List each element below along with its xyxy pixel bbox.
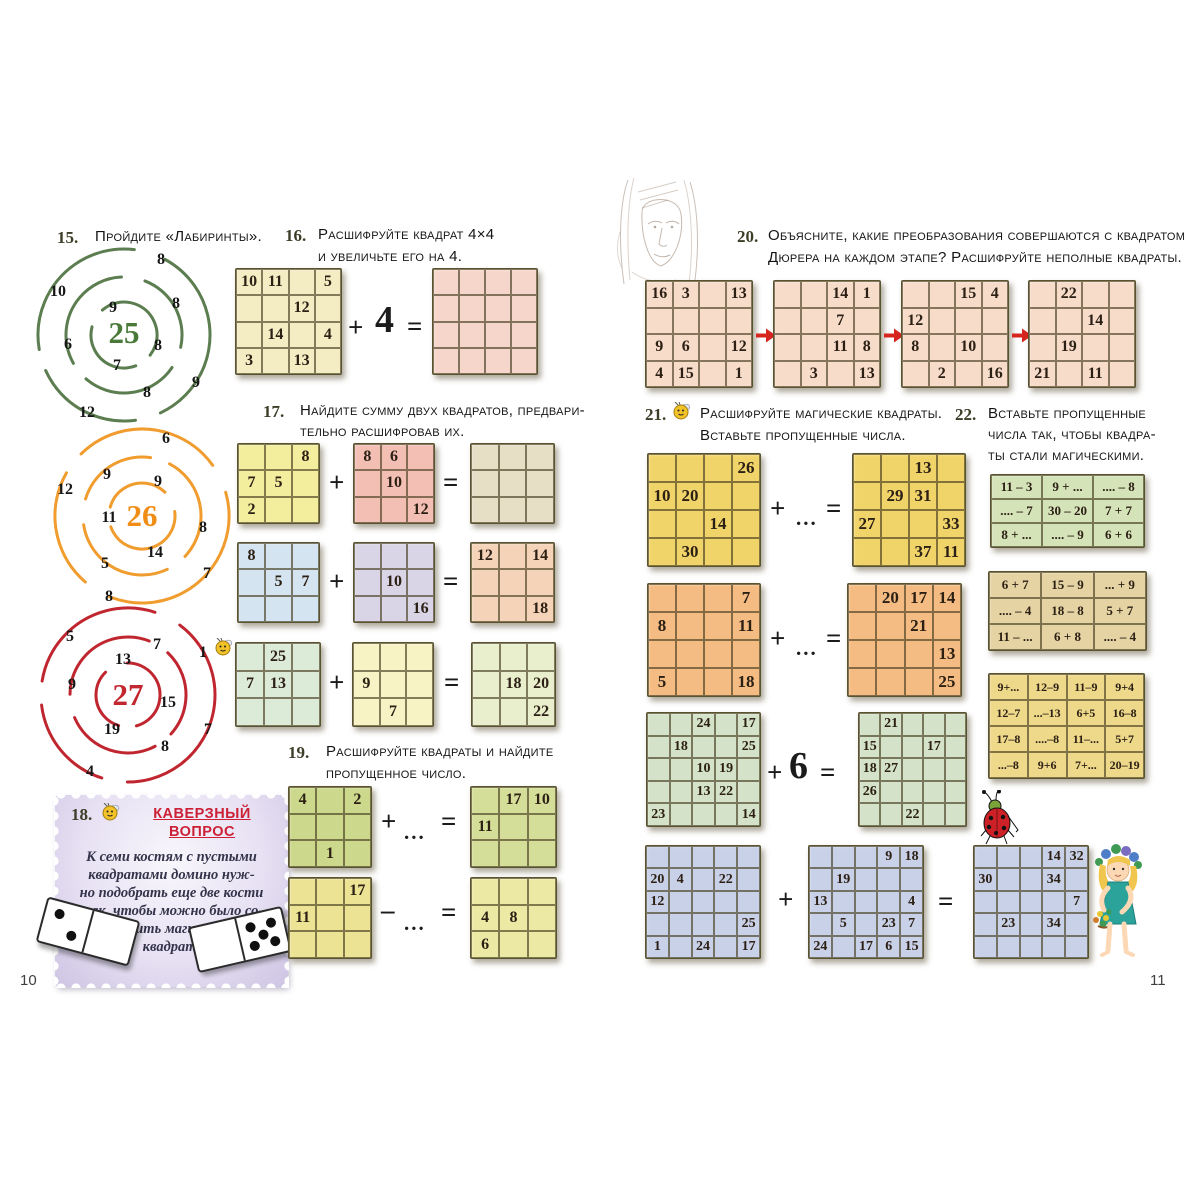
grid-cell xyxy=(236,295,262,321)
grid-cell: 17–8 xyxy=(989,726,1028,752)
grid-cell xyxy=(354,543,381,569)
grid-cell xyxy=(853,482,881,510)
task22-table-1: 11 – 39 + ....... – 8.... – 730 – 207 + … xyxy=(990,474,1145,548)
spiral-number: 7 xyxy=(113,357,121,375)
grid-cell xyxy=(648,640,676,668)
grid-cell: 4 xyxy=(289,787,316,814)
grid-cell xyxy=(737,758,760,781)
equals-operator: = xyxy=(443,467,458,498)
grid-cell xyxy=(1020,891,1043,913)
spiral-number: 9 xyxy=(192,374,200,392)
grid-cell xyxy=(407,569,434,595)
grid-cell xyxy=(997,846,1020,868)
grid-cell: 15 xyxy=(955,281,982,308)
grid-cell: 17 xyxy=(737,713,760,736)
grid-cell xyxy=(471,787,499,814)
grid-cell: 11 xyxy=(262,269,288,295)
grid-cell: 2 xyxy=(929,361,956,388)
task17-row3-grid-sum: 182022 xyxy=(471,642,556,727)
grid-cell xyxy=(289,269,315,295)
grid-cell xyxy=(459,322,485,348)
grid-cell: 30 – 20 xyxy=(1042,499,1093,523)
grid-cell: ...–13 xyxy=(1028,700,1067,726)
grid-cell xyxy=(292,596,319,622)
grid-cell xyxy=(471,569,499,595)
grid-cell xyxy=(433,322,459,348)
grid-cell xyxy=(929,334,956,361)
grid-cell xyxy=(381,543,408,569)
grid-cell xyxy=(827,361,854,388)
grid-cell: 12–7 xyxy=(989,700,1028,726)
grid-cell xyxy=(647,736,670,759)
grid-cell xyxy=(527,643,555,671)
grid-cell: 20 xyxy=(646,868,669,890)
task22-text-line3: ты стали магическими. xyxy=(988,447,1144,464)
grid-cell xyxy=(715,803,738,826)
grid-cell: 11 – 3 xyxy=(991,475,1042,499)
task20-text-line1: Объясните, какие преобразования совершаю… xyxy=(768,227,1185,244)
grid-cell: 11–9 xyxy=(1067,674,1106,700)
grid-cell xyxy=(1056,308,1083,335)
grid-cell xyxy=(714,913,737,935)
grid-cell xyxy=(881,454,909,482)
grid-cell xyxy=(929,281,956,308)
spiral-number: 11 xyxy=(101,509,116,527)
grid-cell xyxy=(982,308,1009,335)
grid-cell xyxy=(471,444,499,470)
durer-portrait-sketch xyxy=(598,172,723,297)
grid-cell xyxy=(407,470,434,496)
grid-cell xyxy=(809,868,832,890)
spiral-number: 8 xyxy=(161,738,169,756)
grid-cell: 6 xyxy=(471,931,499,958)
grid-cell: 20 xyxy=(876,584,904,612)
grid-cell: 2 xyxy=(238,497,265,523)
task16-number: 16. xyxy=(285,226,306,246)
grid-cell: 4 xyxy=(900,891,923,913)
grid-cell xyxy=(704,482,732,510)
grid-cell xyxy=(500,698,528,726)
grid-cell xyxy=(316,931,343,958)
grid-cell: 34 xyxy=(1042,913,1065,935)
grid-cell: 13 xyxy=(909,454,937,482)
grid-cell: 10 xyxy=(692,758,715,781)
operand-4: 4 xyxy=(375,298,394,342)
grid-cell xyxy=(528,931,556,958)
grid-cell xyxy=(354,596,381,622)
grid-cell xyxy=(485,295,511,321)
grid-cell xyxy=(801,334,828,361)
spiral-number: 8 xyxy=(154,337,162,355)
grid-cell: 10 xyxy=(381,569,408,595)
grid-cell: 31 xyxy=(909,482,937,510)
grid-cell: .... – 4 xyxy=(1094,624,1146,650)
grid-cell xyxy=(809,846,832,868)
domino-pip xyxy=(53,908,65,920)
grid-cell xyxy=(648,510,676,538)
grid-cell xyxy=(1042,936,1065,958)
plus-operator: + xyxy=(348,312,363,343)
grid-cell xyxy=(909,510,937,538)
grid-cell xyxy=(485,322,511,348)
grid-cell xyxy=(670,803,693,826)
grid-cell xyxy=(669,846,692,868)
task19-row2-grid-a: 1711 xyxy=(288,877,372,959)
grid-cell xyxy=(905,640,933,668)
domino-pip xyxy=(265,916,277,928)
grid-cell: 7 xyxy=(380,698,407,726)
spiral-number: 6 xyxy=(64,336,72,354)
grid-cell: 18 xyxy=(900,846,923,868)
grid-cell xyxy=(472,698,500,726)
grid-cell: 13 xyxy=(726,281,753,308)
task17-row2-grid-sum: 121418 xyxy=(470,542,555,623)
grid-cell xyxy=(1020,913,1043,935)
grid-cell: 13 xyxy=(289,348,315,374)
grid-cell xyxy=(673,308,700,335)
stamp-body-line: но подобрать еще две кости xyxy=(61,885,282,902)
spiral-number: 14 xyxy=(147,544,163,562)
grid-cell: .... – 8 xyxy=(1093,475,1144,499)
grid-cell xyxy=(316,814,343,841)
grid-cell: 9+... xyxy=(989,674,1028,700)
spiral-number: 6 xyxy=(162,430,170,448)
grid-cell: 5 xyxy=(265,569,292,595)
grid-cell xyxy=(528,814,556,841)
grid-cell: 15 xyxy=(673,361,700,388)
grid-cell: 14 xyxy=(262,322,288,348)
grid-cell xyxy=(511,322,537,348)
grid-cell xyxy=(699,361,726,388)
grid-cell xyxy=(704,640,732,668)
grid-cell xyxy=(704,538,732,566)
grid-cell xyxy=(854,308,881,335)
task22-table-3: 9+...12–911–99+412–7...–136+516–817–8...… xyxy=(988,673,1145,779)
grid-cell xyxy=(315,295,341,321)
spiral-number: 5 xyxy=(66,628,74,646)
domino-pip xyxy=(65,930,77,942)
page-number-right: 11 xyxy=(1150,972,1166,989)
grid-cell: 5 xyxy=(648,668,676,696)
grid-cell xyxy=(737,846,760,868)
grid-cell xyxy=(732,538,760,566)
task22-text-line1: Вставьте пропущенные xyxy=(988,405,1146,422)
plus-operator: + xyxy=(767,757,782,788)
grid-cell xyxy=(1029,308,1056,335)
grid-cell xyxy=(381,497,408,523)
grid-cell: ... + 9 xyxy=(1094,572,1146,598)
grid-cell: 18 xyxy=(859,758,880,781)
grid-cell xyxy=(238,444,265,470)
grid-cell xyxy=(877,868,900,890)
grid-cell xyxy=(1109,281,1136,308)
grid-cell xyxy=(801,281,828,308)
grid-cell: 27 xyxy=(880,758,901,781)
grid-cell: 24 xyxy=(692,713,715,736)
task17-row1-grid-b: 861012 xyxy=(353,443,435,524)
grid-cell xyxy=(923,803,944,826)
grid-cell xyxy=(726,308,753,335)
grid-cell xyxy=(433,295,459,321)
labyrinth-25: 25 8 10 9 8 6 8 7 8 9 12 xyxy=(10,240,250,440)
spiral-number: 7 xyxy=(204,721,212,739)
equals-operator: = xyxy=(441,897,456,928)
grid-cell xyxy=(982,334,1009,361)
grid-cell xyxy=(500,643,528,671)
domino-pip xyxy=(249,940,261,952)
grid-cell xyxy=(1042,891,1065,913)
grid-cell xyxy=(647,713,670,736)
grid-cell: 8 xyxy=(499,905,527,932)
grid-cell xyxy=(923,781,944,804)
grid-cell xyxy=(499,840,527,867)
grid-cell: 19 xyxy=(1056,334,1083,361)
task21-number: 21. xyxy=(645,405,666,425)
grid-cell: 7+... xyxy=(1067,752,1106,778)
grid-cell: 8 xyxy=(354,444,381,470)
grid-cell: 25 xyxy=(933,668,961,696)
grid-cell xyxy=(732,510,760,538)
grid-cell xyxy=(859,803,880,826)
task17-row2-grid-b: 1016 xyxy=(353,542,435,623)
stamp-body-line: К семи костям с пустыми xyxy=(61,849,282,866)
plus-operator: + xyxy=(329,467,344,498)
spiral-number: 8 xyxy=(157,251,165,269)
grid-cell xyxy=(880,803,901,826)
grid-cell: 4 xyxy=(669,868,692,890)
grid-cell xyxy=(714,891,737,913)
grid-cell: 15 – 9 xyxy=(1041,572,1093,598)
grid-cell xyxy=(774,334,801,361)
grid-cell: 10 xyxy=(236,269,262,295)
task18-number: 18. xyxy=(71,805,92,825)
grid-cell xyxy=(669,913,692,935)
grid-cell xyxy=(692,868,715,890)
book-spread: 15. Пройдите «Лабиринты». 25 8 10 9 8 6 … xyxy=(0,0,1200,1200)
grid-cell xyxy=(881,510,909,538)
equals-operator: = xyxy=(407,311,422,342)
grid-cell: 9 + ... xyxy=(1042,475,1093,499)
grid-cell xyxy=(714,936,737,958)
grid-cell xyxy=(289,878,316,905)
grid-cell xyxy=(902,281,929,308)
grid-cell: 5 + 7 xyxy=(1094,598,1146,624)
grid-cell xyxy=(354,497,381,523)
task21-row1-grid-b: 13293127333711 xyxy=(852,453,966,567)
grid-cell xyxy=(699,334,726,361)
grid-cell: 13 xyxy=(264,671,292,699)
task21-row4-grid-a: 20422122512417 xyxy=(645,845,761,959)
grid-cell xyxy=(528,905,556,932)
grid-cell xyxy=(669,891,692,913)
grid-cell xyxy=(715,713,738,736)
grid-cell xyxy=(676,668,704,696)
grid-cell: 1 xyxy=(316,840,343,867)
task19-text-line1: Расшифруйте квадраты и найдите xyxy=(326,743,554,760)
grid-cell xyxy=(997,891,1020,913)
grid-cell: 25 xyxy=(264,643,292,671)
grid-cell: 7 + 7 xyxy=(1093,499,1144,523)
grid-cell xyxy=(848,612,876,640)
grid-cell: .... – 4 xyxy=(989,598,1041,624)
grid-cell: 6 + 6 xyxy=(1093,523,1144,547)
spiral-number: 12 xyxy=(57,481,73,499)
grid-cell xyxy=(1109,361,1136,388)
grid-cell xyxy=(471,878,499,905)
grid-cell xyxy=(1109,308,1136,335)
grid-cell: 3 xyxy=(801,361,828,388)
grid-cell xyxy=(699,308,726,335)
spiral-center-number: 26 xyxy=(127,498,158,534)
grid-cell xyxy=(471,596,499,622)
grid-cell xyxy=(265,596,292,622)
grid-cell: 24 xyxy=(692,936,715,958)
grid-cell xyxy=(648,454,676,482)
fairy-girl-illustration xyxy=(1078,838,1158,968)
grid-cell: 9 xyxy=(353,671,380,699)
grid-cell xyxy=(499,444,527,470)
grid-cell: 11 xyxy=(937,538,965,566)
grid-cell: 8 xyxy=(292,444,319,470)
task17-row2-grid-a: 857 xyxy=(237,542,320,623)
grid-cell xyxy=(974,846,997,868)
grid-cell xyxy=(692,891,715,913)
grid-cell xyxy=(923,758,944,781)
grid-cell xyxy=(380,671,407,699)
grid-cell xyxy=(433,269,459,295)
grid-cell: 21 xyxy=(1029,361,1056,388)
grid-cell xyxy=(945,736,966,759)
grid-cell: 7 xyxy=(292,569,319,595)
grid-cell: 12 xyxy=(646,891,669,913)
grid-cell xyxy=(344,905,371,932)
grid-cell: 23 xyxy=(997,913,1020,935)
grid-cell xyxy=(670,781,693,804)
grid-cell: 13 xyxy=(809,891,832,913)
grid-cell: .... – 9 xyxy=(1042,523,1093,547)
grid-cell xyxy=(381,596,408,622)
grid-cell xyxy=(732,640,760,668)
grid-cell: 21 xyxy=(905,612,933,640)
grid-cell xyxy=(1020,846,1043,868)
grid-cell: .... – 7 xyxy=(991,499,1042,523)
grid-cell xyxy=(315,348,341,374)
equals-operator: = xyxy=(820,757,835,788)
grid-cell xyxy=(407,444,434,470)
grid-cell xyxy=(801,308,828,335)
task16-text-line1: Расшифруйте квадрат 4×4 xyxy=(318,226,494,243)
grid-cell: 7 xyxy=(732,584,760,612)
grid-cell: 5+7 xyxy=(1105,726,1144,752)
grid-cell: 11–... xyxy=(1067,726,1106,752)
plus-operator: + xyxy=(778,884,793,915)
grid-cell xyxy=(955,308,982,335)
minus-operator: – xyxy=(381,895,395,926)
grid-cell xyxy=(933,612,961,640)
grid-cell xyxy=(238,596,265,622)
grid-cell: 8 xyxy=(902,334,929,361)
task20-grid-1: 1631396124151 xyxy=(645,280,753,388)
grid-cell xyxy=(704,454,732,482)
task20-text-line2: Дюрера на каждом этапе? Расшифруйте непо… xyxy=(768,249,1182,266)
task19-row2-grid-b: 486 xyxy=(470,877,557,959)
grid-cell xyxy=(354,470,381,496)
grid-cell xyxy=(292,497,319,523)
grid-cell xyxy=(876,612,904,640)
grid-cell: 11 xyxy=(1082,361,1109,388)
grid-cell: 19 xyxy=(715,758,738,781)
bee-icon xyxy=(672,402,692,420)
task16-source-grid: 1011512144313 xyxy=(235,268,342,375)
equals-operator: = xyxy=(826,623,841,654)
grid-cell xyxy=(472,671,500,699)
ellipsis-operand: ... xyxy=(404,820,426,845)
grid-cell xyxy=(344,931,371,958)
grid-cell xyxy=(902,361,929,388)
grid-cell: 13 xyxy=(692,781,715,804)
grid-cell: 12 xyxy=(726,334,753,361)
grid-cell xyxy=(929,308,956,335)
grid-cell xyxy=(902,781,923,804)
grid-cell xyxy=(511,295,537,321)
grid-cell xyxy=(848,668,876,696)
grid-cell xyxy=(292,671,320,699)
grid-cell xyxy=(344,840,371,867)
domino-pip xyxy=(257,928,269,940)
grid-cell xyxy=(499,569,527,595)
grid-cell: 1 xyxy=(726,361,753,388)
grid-cell: 5 xyxy=(832,913,855,935)
grid-cell: 16 xyxy=(982,361,1009,388)
grid-cell xyxy=(974,936,997,958)
stamp-title-line1: КАВЕРЗНЫЙ xyxy=(127,806,277,822)
domino-pip xyxy=(245,921,257,933)
grid-cell: 29 xyxy=(881,482,909,510)
grid-cell xyxy=(262,348,288,374)
task21-row4-grid-b: 9181913452372417615 xyxy=(808,845,924,959)
task19-number: 19. xyxy=(288,743,309,763)
grid-cell xyxy=(485,269,511,295)
grid-cell: 6 + 7 xyxy=(989,572,1041,598)
task20-grid-3: 15412810216 xyxy=(901,280,1009,388)
grid-cell: 9 xyxy=(646,334,673,361)
grid-cell: 16–8 xyxy=(1105,700,1144,726)
grid-cell xyxy=(997,936,1020,958)
grid-cell xyxy=(236,643,264,671)
grid-cell: 1 xyxy=(854,281,881,308)
grid-cell: 22 xyxy=(714,868,737,890)
grid-cell xyxy=(526,444,554,470)
grid-cell xyxy=(692,846,715,868)
grid-cell xyxy=(955,361,982,388)
grid-cell: 19 xyxy=(832,868,855,890)
grid-cell: 26 xyxy=(732,454,760,482)
grid-cell xyxy=(646,846,669,868)
grid-cell xyxy=(1020,868,1043,890)
grid-cell: 25 xyxy=(737,913,760,935)
task16-text-line2: и увеличьте его на 4. xyxy=(318,248,462,265)
grid-cell xyxy=(945,758,966,781)
equals-operator: = xyxy=(441,806,456,837)
task21-row3-grid-a: 24171825101913222314 xyxy=(646,712,761,827)
ellipsis-operand: ... xyxy=(796,506,818,531)
grid-cell: 14 xyxy=(1082,308,1109,335)
grid-cell xyxy=(407,543,434,569)
grid-cell xyxy=(647,781,670,804)
spiral-number: 8 xyxy=(143,384,151,402)
grid-cell xyxy=(945,803,966,826)
task20-grid-2: 1417118313 xyxy=(773,280,881,388)
